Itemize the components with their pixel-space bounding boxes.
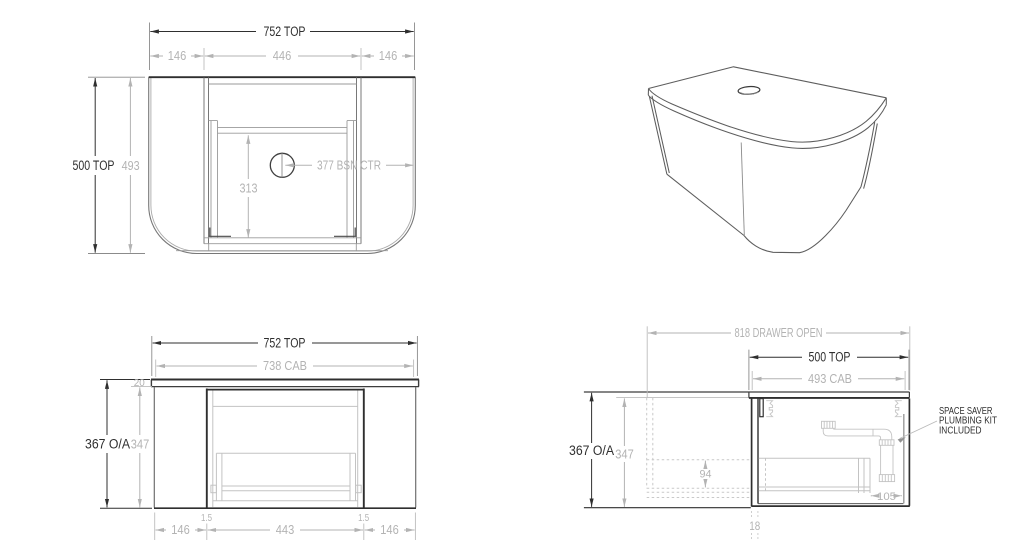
svg-text:1.5: 1.5 [358,512,369,524]
svg-text:500 TOP: 500 TOP [73,158,115,173]
svg-text:146: 146 [380,523,399,537]
svg-text:146: 146 [168,49,187,63]
svg-text:752 TOP: 752 TOP [264,24,306,39]
svg-text:146: 146 [171,523,190,537]
svg-text:347: 347 [615,447,634,461]
svg-text:94: 94 [700,468,712,480]
svg-text:738 CAB: 738 CAB [263,359,307,373]
svg-text:146: 146 [379,49,398,63]
svg-text:752 TOP: 752 TOP [264,336,306,351]
svg-text:347: 347 [131,438,150,452]
svg-text:313: 313 [240,182,258,196]
svg-text:20: 20 [134,378,145,389]
svg-text:367 O/A: 367 O/A [569,443,614,458]
svg-text:367 O/A: 367 O/A [85,437,130,452]
svg-text:INCLUDED: INCLUDED [939,426,982,437]
svg-text:493: 493 [122,159,140,173]
svg-text:18: 18 [749,519,760,533]
svg-text:446: 446 [273,49,292,63]
svg-text:105: 105 [877,491,896,503]
svg-text:377 BSN CTR: 377 BSN CTR [317,159,381,173]
svg-text:1.5: 1.5 [201,512,212,524]
svg-text:443: 443 [276,523,295,537]
svg-text:818 DRAWER OPEN: 818 DRAWER OPEN [735,326,823,340]
svg-text:500 TOP: 500 TOP [809,350,851,365]
svg-text:493 CAB: 493 CAB [808,372,852,386]
